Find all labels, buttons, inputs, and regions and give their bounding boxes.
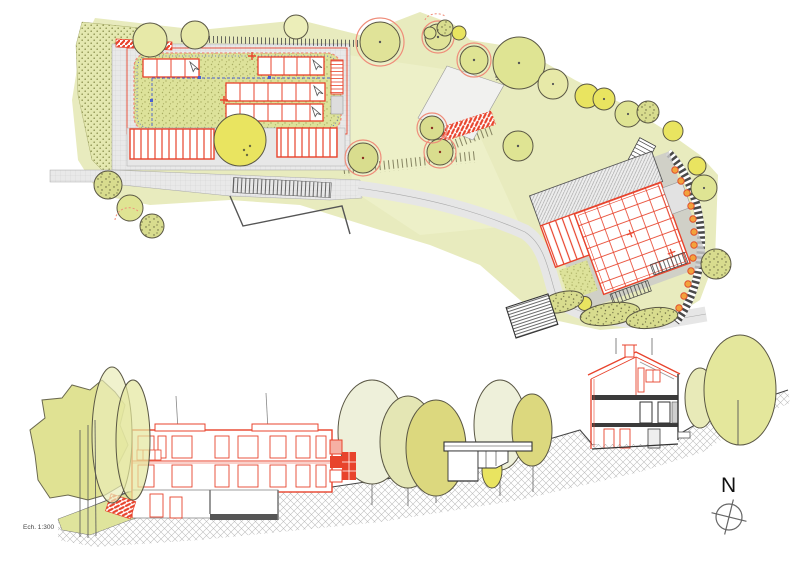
- tree-new: [345, 140, 381, 176]
- skylight-row-3: [226, 83, 325, 101]
- exterior-stair: [331, 60, 343, 114]
- site-plan: [50, 12, 731, 338]
- tree: [688, 157, 706, 175]
- scale-label: Ech. 1:300: [23, 524, 54, 531]
- tree-new: [417, 113, 447, 143]
- upper-story: [640, 402, 678, 423]
- drawing-canvas: N Ech. 1:300: [0, 0, 800, 566]
- tree: [133, 23, 167, 57]
- parking-stalls-right: [277, 128, 337, 157]
- building-b-section: [588, 345, 690, 449]
- tree: [284, 15, 308, 39]
- tree-elevation: [704, 335, 776, 445]
- compass-crosshair-icon: [707, 495, 751, 539]
- tree: [663, 121, 683, 141]
- tree-new: [457, 43, 491, 77]
- tree: [181, 21, 209, 49]
- striped-deck: [506, 294, 558, 338]
- chimney: [625, 345, 634, 357]
- tree-elevation: [116, 380, 150, 500]
- garden-level: [132, 490, 278, 520]
- north-label: N: [721, 474, 736, 497]
- parking-stalls-left: [130, 129, 214, 159]
- tree-new: [356, 18, 404, 66]
- tree: [94, 171, 122, 199]
- elevation-section: [30, 335, 790, 547]
- architectural-drawing: N Ech. 1:300: [0, 0, 800, 566]
- tree: [701, 249, 731, 279]
- floor-slab-2: [592, 423, 678, 427]
- north-indicator: N: [707, 474, 751, 539]
- tree: [140, 214, 164, 238]
- tree-elevation: [512, 394, 552, 466]
- tree-large: [214, 114, 266, 166]
- floor-slab-1: [592, 395, 678, 400]
- skylight-row-1: [143, 59, 199, 77]
- skylight-row-2: [258, 57, 324, 75]
- tree: [637, 101, 659, 123]
